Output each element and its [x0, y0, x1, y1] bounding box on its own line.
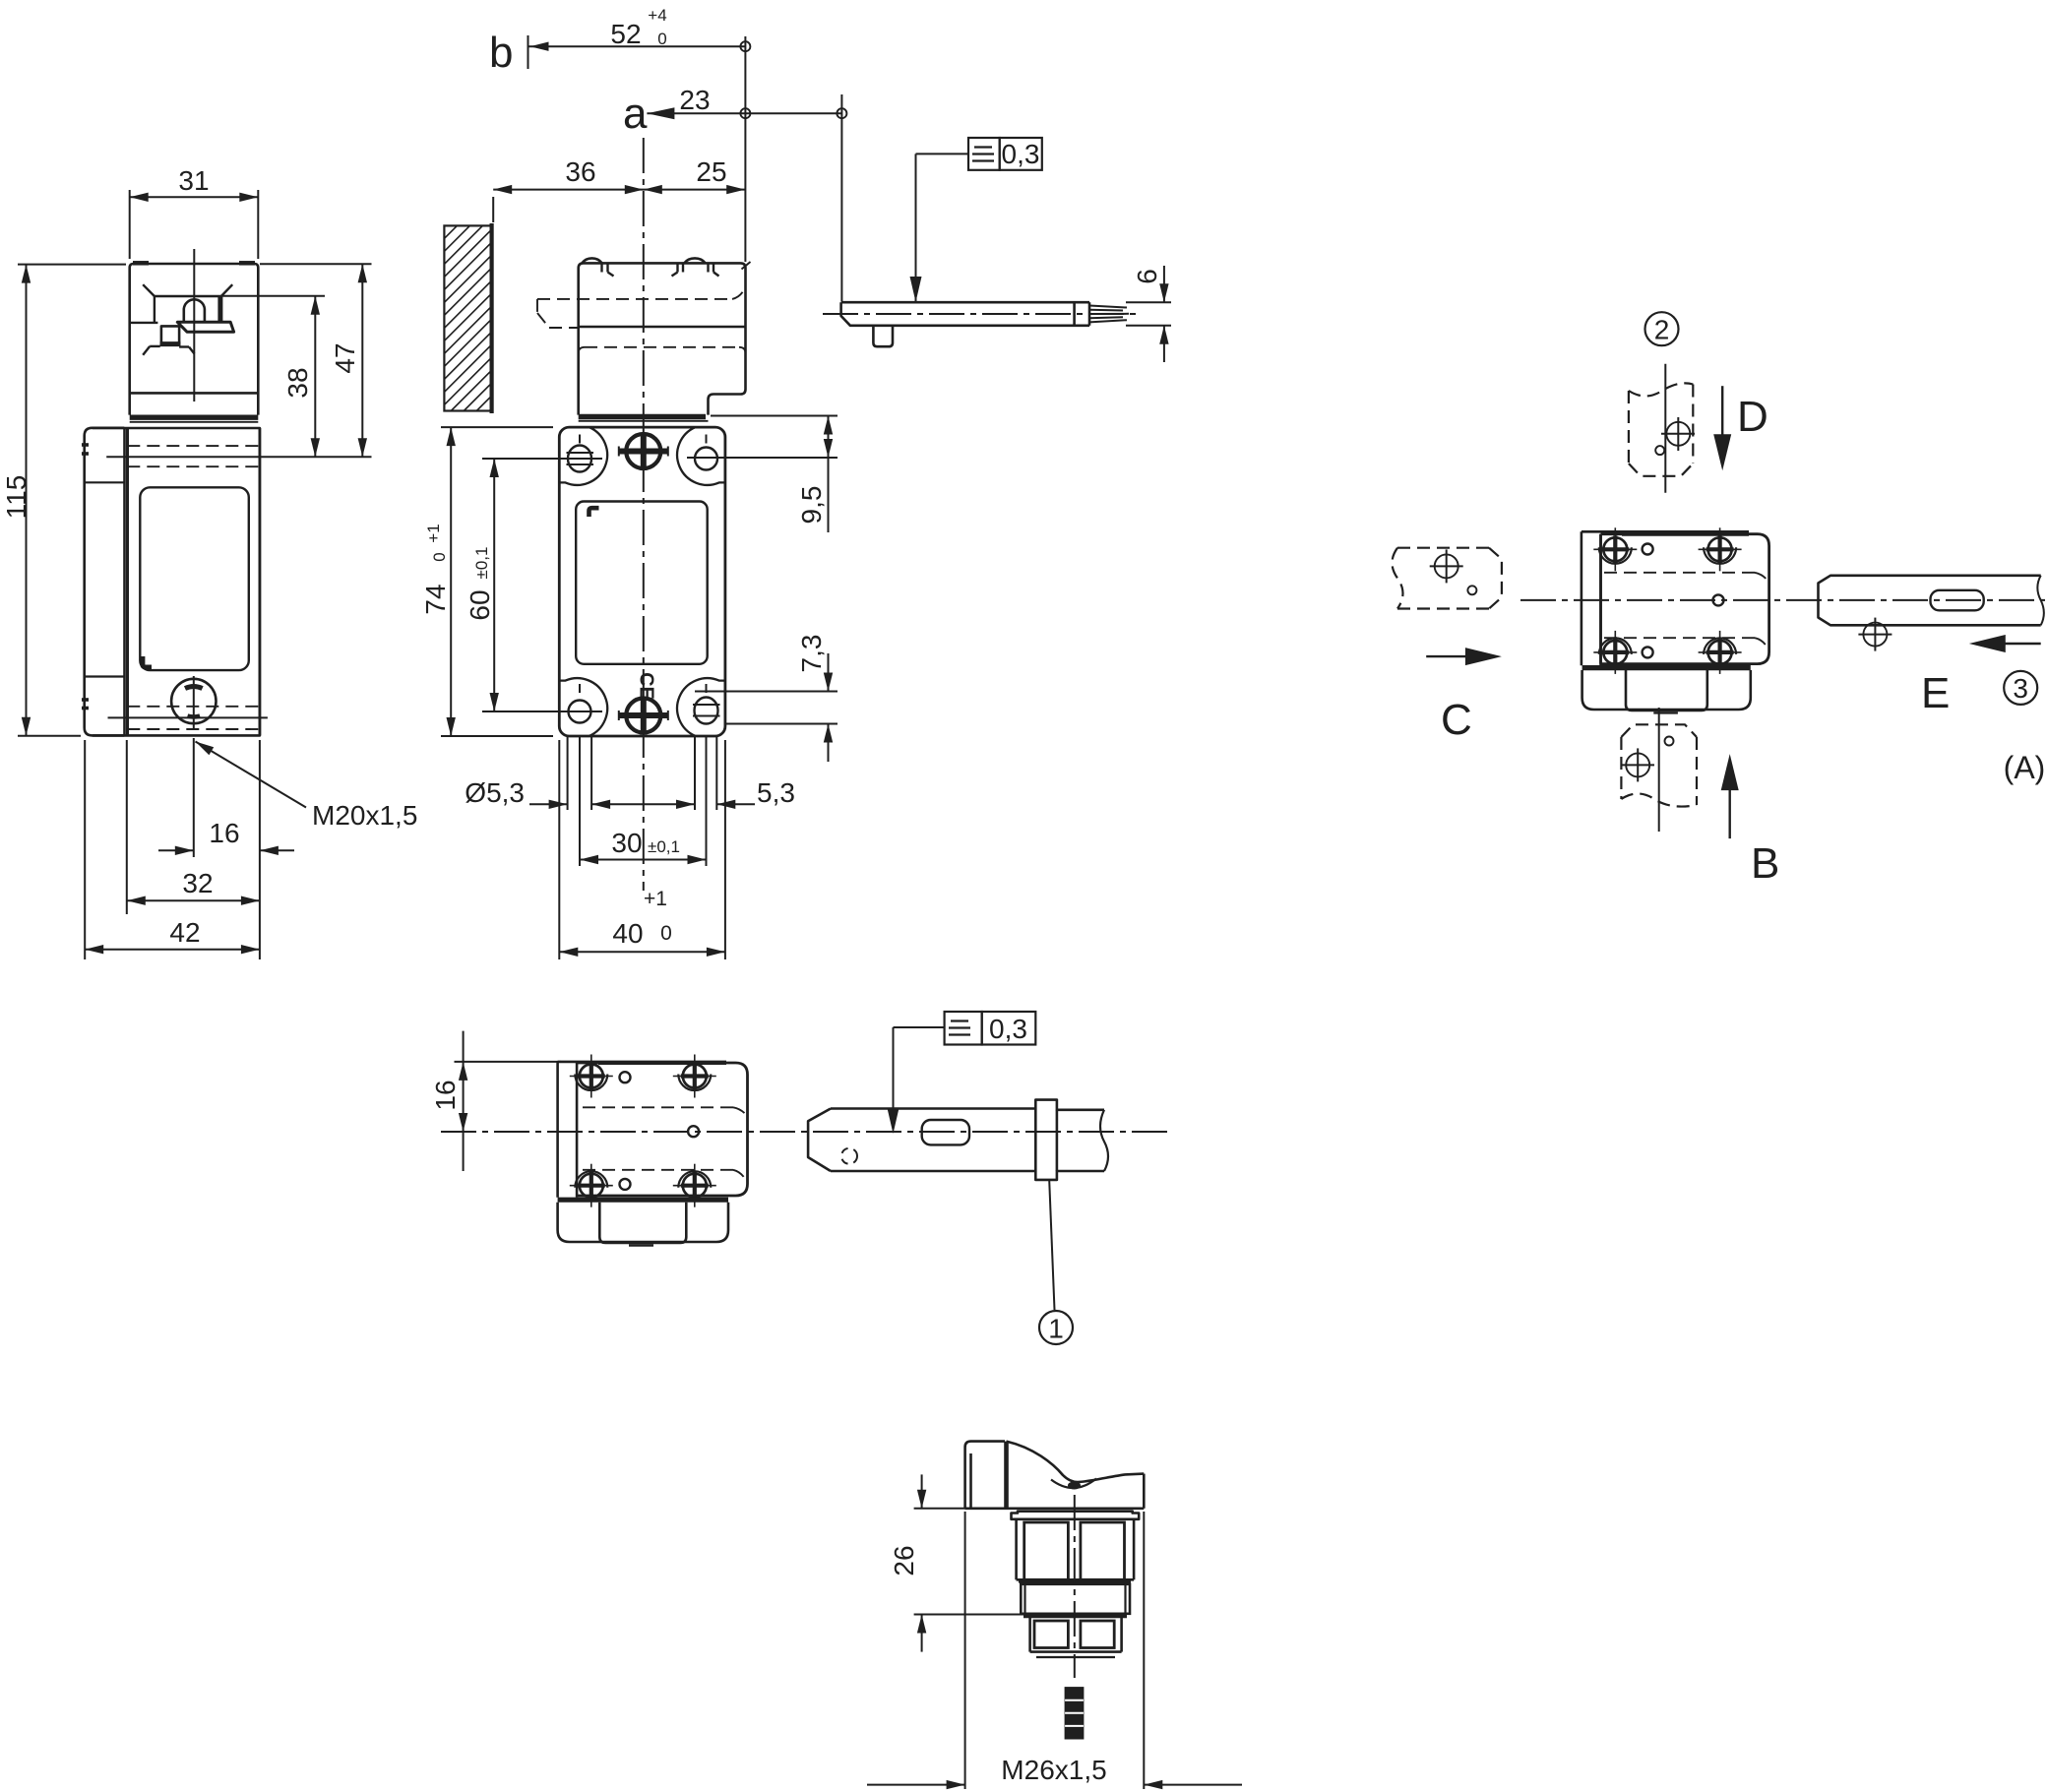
svg-text:Ø5,3: Ø5,3: [465, 777, 525, 808]
svg-text:(A): (A): [2004, 750, 2046, 785]
svg-text:30: 30: [611, 828, 642, 858]
svg-text:38: 38: [282, 367, 313, 398]
svg-text:32: 32: [182, 868, 213, 898]
svg-text:26: 26: [889, 1545, 919, 1576]
svg-text:3: 3: [2013, 673, 2028, 704]
svg-text:31: 31: [178, 165, 209, 196]
svg-text:25: 25: [696, 156, 726, 187]
svg-text:0: 0: [657, 30, 666, 48]
svg-text:M20x1,5: M20x1,5: [312, 800, 417, 831]
svg-text:16: 16: [209, 818, 239, 848]
svg-text:42: 42: [169, 917, 200, 948]
svg-text:E: E: [1921, 669, 1950, 717]
svg-text:a: a: [623, 90, 648, 138]
svg-text:40: 40: [612, 918, 643, 949]
svg-text:CE: CE: [636, 672, 657, 700]
svg-text:7,3: 7,3: [796, 635, 827, 673]
svg-text:C: C: [1441, 696, 1472, 744]
svg-text:16: 16: [430, 1080, 461, 1110]
svg-text:±0,1: ±0,1: [472, 547, 491, 580]
svg-text:0,3: 0,3: [1002, 139, 1040, 169]
svg-text:74: 74: [420, 584, 451, 614]
svg-text:47: 47: [330, 342, 360, 373]
svg-text:9,5: 9,5: [796, 486, 827, 525]
svg-text:+4: +4: [648, 6, 666, 25]
svg-text:1: 1: [1048, 1313, 1064, 1343]
svg-text:0,3: 0,3: [989, 1014, 1027, 1044]
svg-text:+1: +1: [424, 524, 443, 542]
svg-text:23: 23: [679, 85, 710, 115]
svg-text:5,3: 5,3: [757, 777, 795, 808]
svg-text:B: B: [1751, 839, 1779, 888]
svg-text:60: 60: [465, 589, 495, 620]
svg-text:D: D: [1737, 393, 1768, 441]
svg-text:6: 6: [1132, 269, 1162, 284]
svg-text:+1: +1: [644, 888, 667, 910]
svg-text:2: 2: [1654, 315, 1670, 345]
svg-text:0: 0: [660, 922, 672, 945]
svg-text:0: 0: [430, 552, 449, 561]
svg-text:115: 115: [1, 475, 31, 520]
svg-text:52: 52: [610, 19, 641, 49]
svg-text:M26x1,5: M26x1,5: [1001, 1755, 1106, 1785]
svg-text:36: 36: [565, 156, 595, 187]
svg-text:±0,1: ±0,1: [648, 837, 680, 856]
svg-text:b: b: [489, 29, 513, 77]
